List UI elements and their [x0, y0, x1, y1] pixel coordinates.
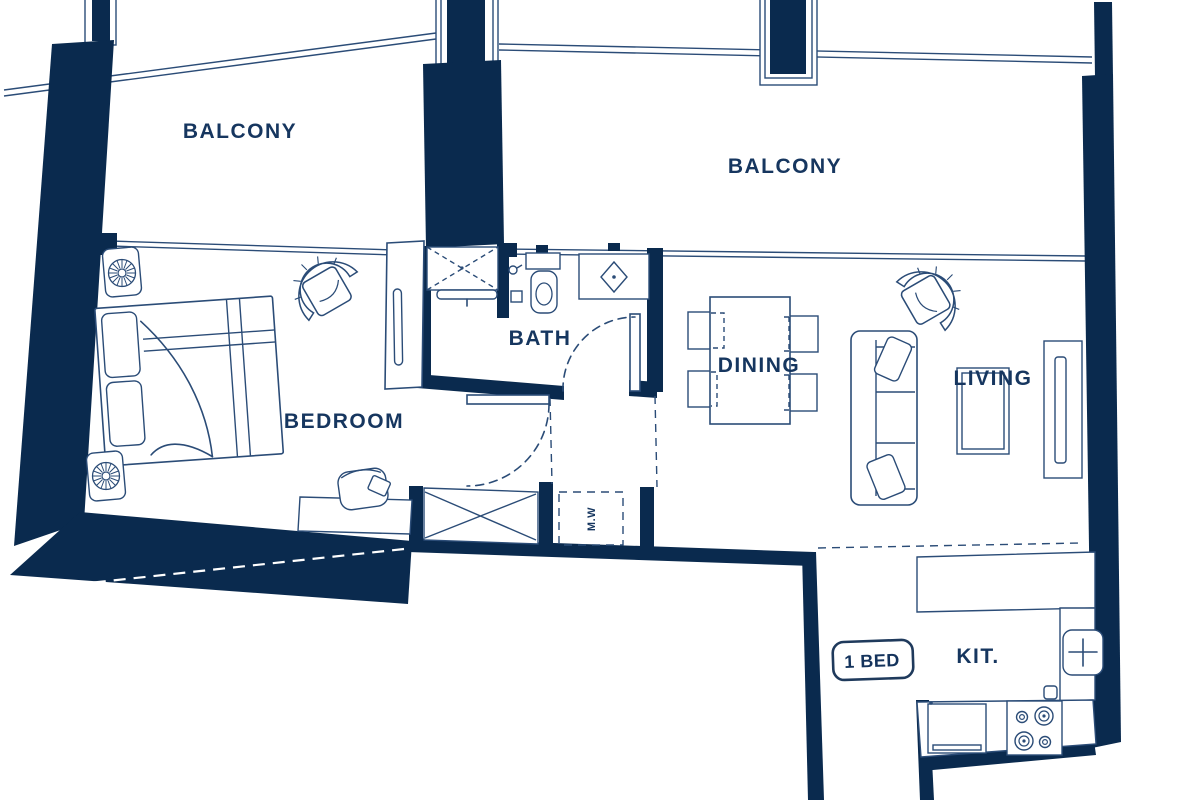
room-kitchen: KIT. 1 BED — [818, 543, 1103, 757]
bath-label: BATH — [509, 327, 572, 350]
floor-plan: BEDROOM BATH M.W — [0, 0, 1200, 800]
door-leaf — [630, 314, 640, 391]
washer-label: M.W — [586, 507, 598, 531]
unit-badge-label: 1 BED — [844, 650, 900, 672]
tap-icon — [509, 266, 517, 274]
tv-unit-icon — [1044, 341, 1082, 478]
wall-right-top — [1094, 2, 1113, 78]
pillow-icon — [106, 380, 145, 446]
kitchen-sink-icon — [1063, 630, 1103, 675]
shower-screen — [437, 290, 497, 299]
sink-vanity-icon — [579, 254, 649, 299]
window-mullion — [536, 245, 548, 253]
bedroom-label: BEDROOM — [284, 410, 404, 433]
wall-stub-corridor — [539, 482, 553, 548]
wall-kitchen-left — [802, 552, 824, 800]
window-wall-line — [110, 246, 428, 256]
toilet-icon — [509, 253, 560, 313]
balcony-railings — [4, 33, 1092, 96]
stove-icon — [1007, 701, 1062, 755]
wall-center-column — [423, 60, 504, 248]
wardrobe-icon — [385, 241, 424, 389]
shower-icon — [427, 247, 498, 306]
balcony-right-label: BALCONY — [728, 155, 842, 178]
open-boundary — [655, 396, 657, 487]
lamp-icon — [93, 463, 120, 490]
wardrobe-handle — [393, 289, 402, 365]
wall-stub-corridor — [640, 487, 654, 548]
door-swing-arc — [563, 317, 635, 391]
toilet-paper-holder — [511, 291, 522, 302]
bed-icon — [95, 296, 284, 466]
room-bath: BATH — [427, 247, 649, 391]
tv-icon — [1055, 357, 1066, 463]
open-boundary — [550, 398, 552, 484]
pillow-icon — [101, 312, 140, 378]
column — [770, 0, 806, 74]
wall-shower-partition — [497, 244, 509, 318]
room-dining: DINING — [688, 297, 818, 424]
window-wall-line — [110, 241, 428, 251]
living-label: LIVING — [953, 367, 1032, 390]
unit-badge: 1 BED — [832, 640, 913, 681]
balcony-left-label: BALCONY — [183, 120, 297, 143]
lamp-icon — [109, 260, 136, 287]
kitchen-label: KIT. — [956, 645, 999, 668]
kitchen-open-boundary — [818, 543, 1082, 548]
dishwasher-icon — [928, 701, 986, 753]
door-leaf — [467, 395, 549, 404]
armchair-icon — [886, 250, 977, 341]
kitchen-counter — [917, 552, 1095, 612]
room-living: LIVING — [851, 250, 1082, 505]
socket-icon — [1044, 686, 1057, 699]
window-mullion — [608, 243, 620, 251]
door-swing-arc — [467, 404, 549, 486]
column — [92, 0, 110, 41]
dining-label: DINING — [718, 354, 801, 377]
sofa-icon — [851, 331, 917, 505]
